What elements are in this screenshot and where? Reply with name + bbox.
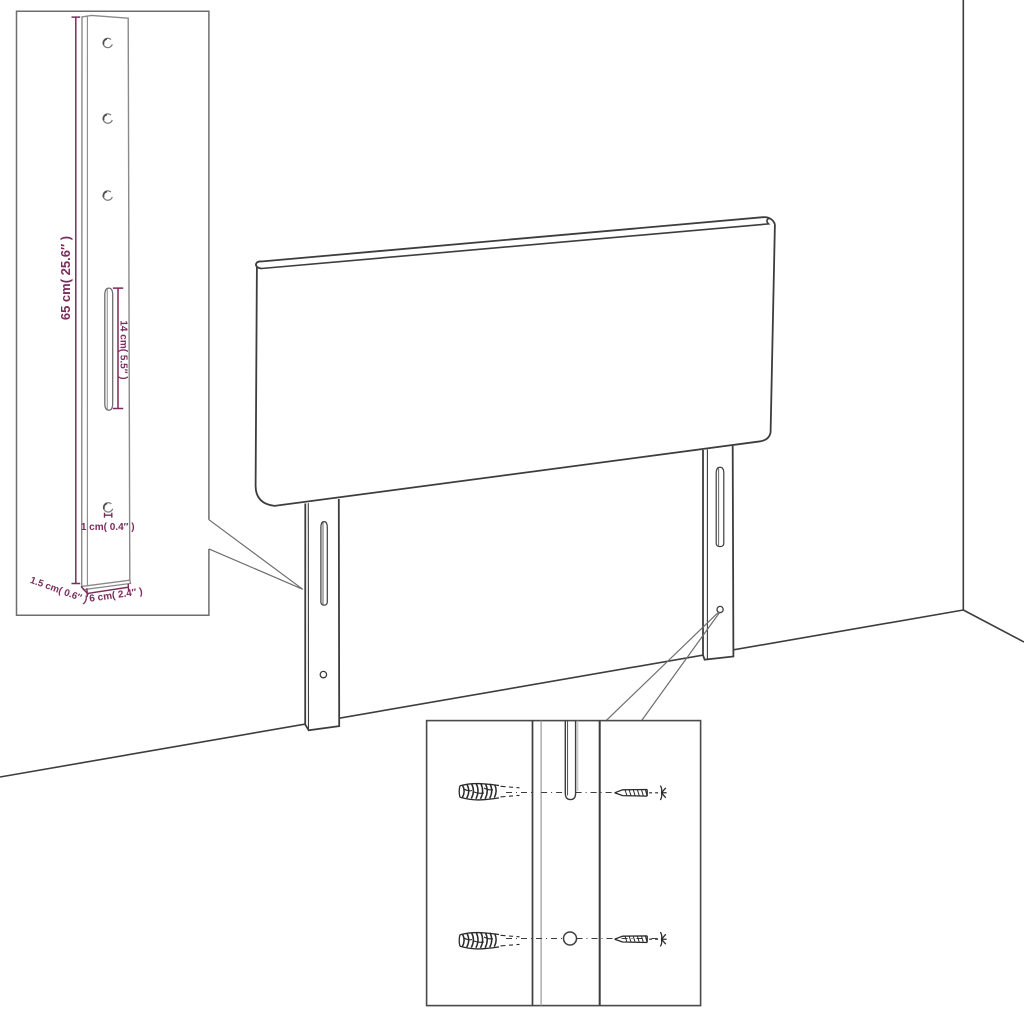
svg-text:6 cm( 2.4″ ): 6 cm( 2.4″ )	[89, 586, 144, 604]
svg-text:14 cm( 5.5″ ): 14 cm( 5.5″ )	[117, 320, 128, 379]
svg-text:1 cm( 0.4″ ): 1 cm( 0.4″ )	[81, 522, 135, 533]
svg-text:1.5 cm( 0.6″ ): 1.5 cm( 0.6″ )	[28, 575, 88, 606]
svg-text:65 cm( 25.6″ ): 65 cm( 25.6″ )	[58, 236, 73, 320]
